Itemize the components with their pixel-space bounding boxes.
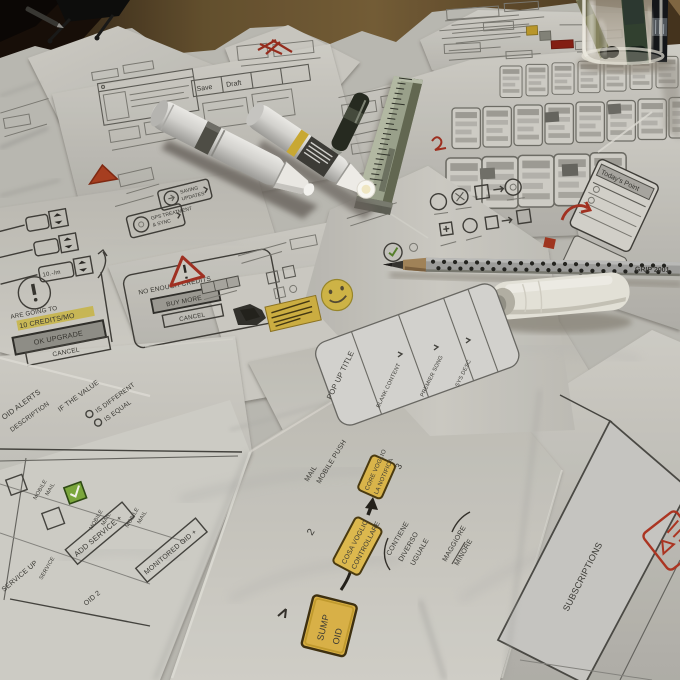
svg-text:GRIP 2001: GRIP 2001 bbox=[635, 266, 670, 274]
